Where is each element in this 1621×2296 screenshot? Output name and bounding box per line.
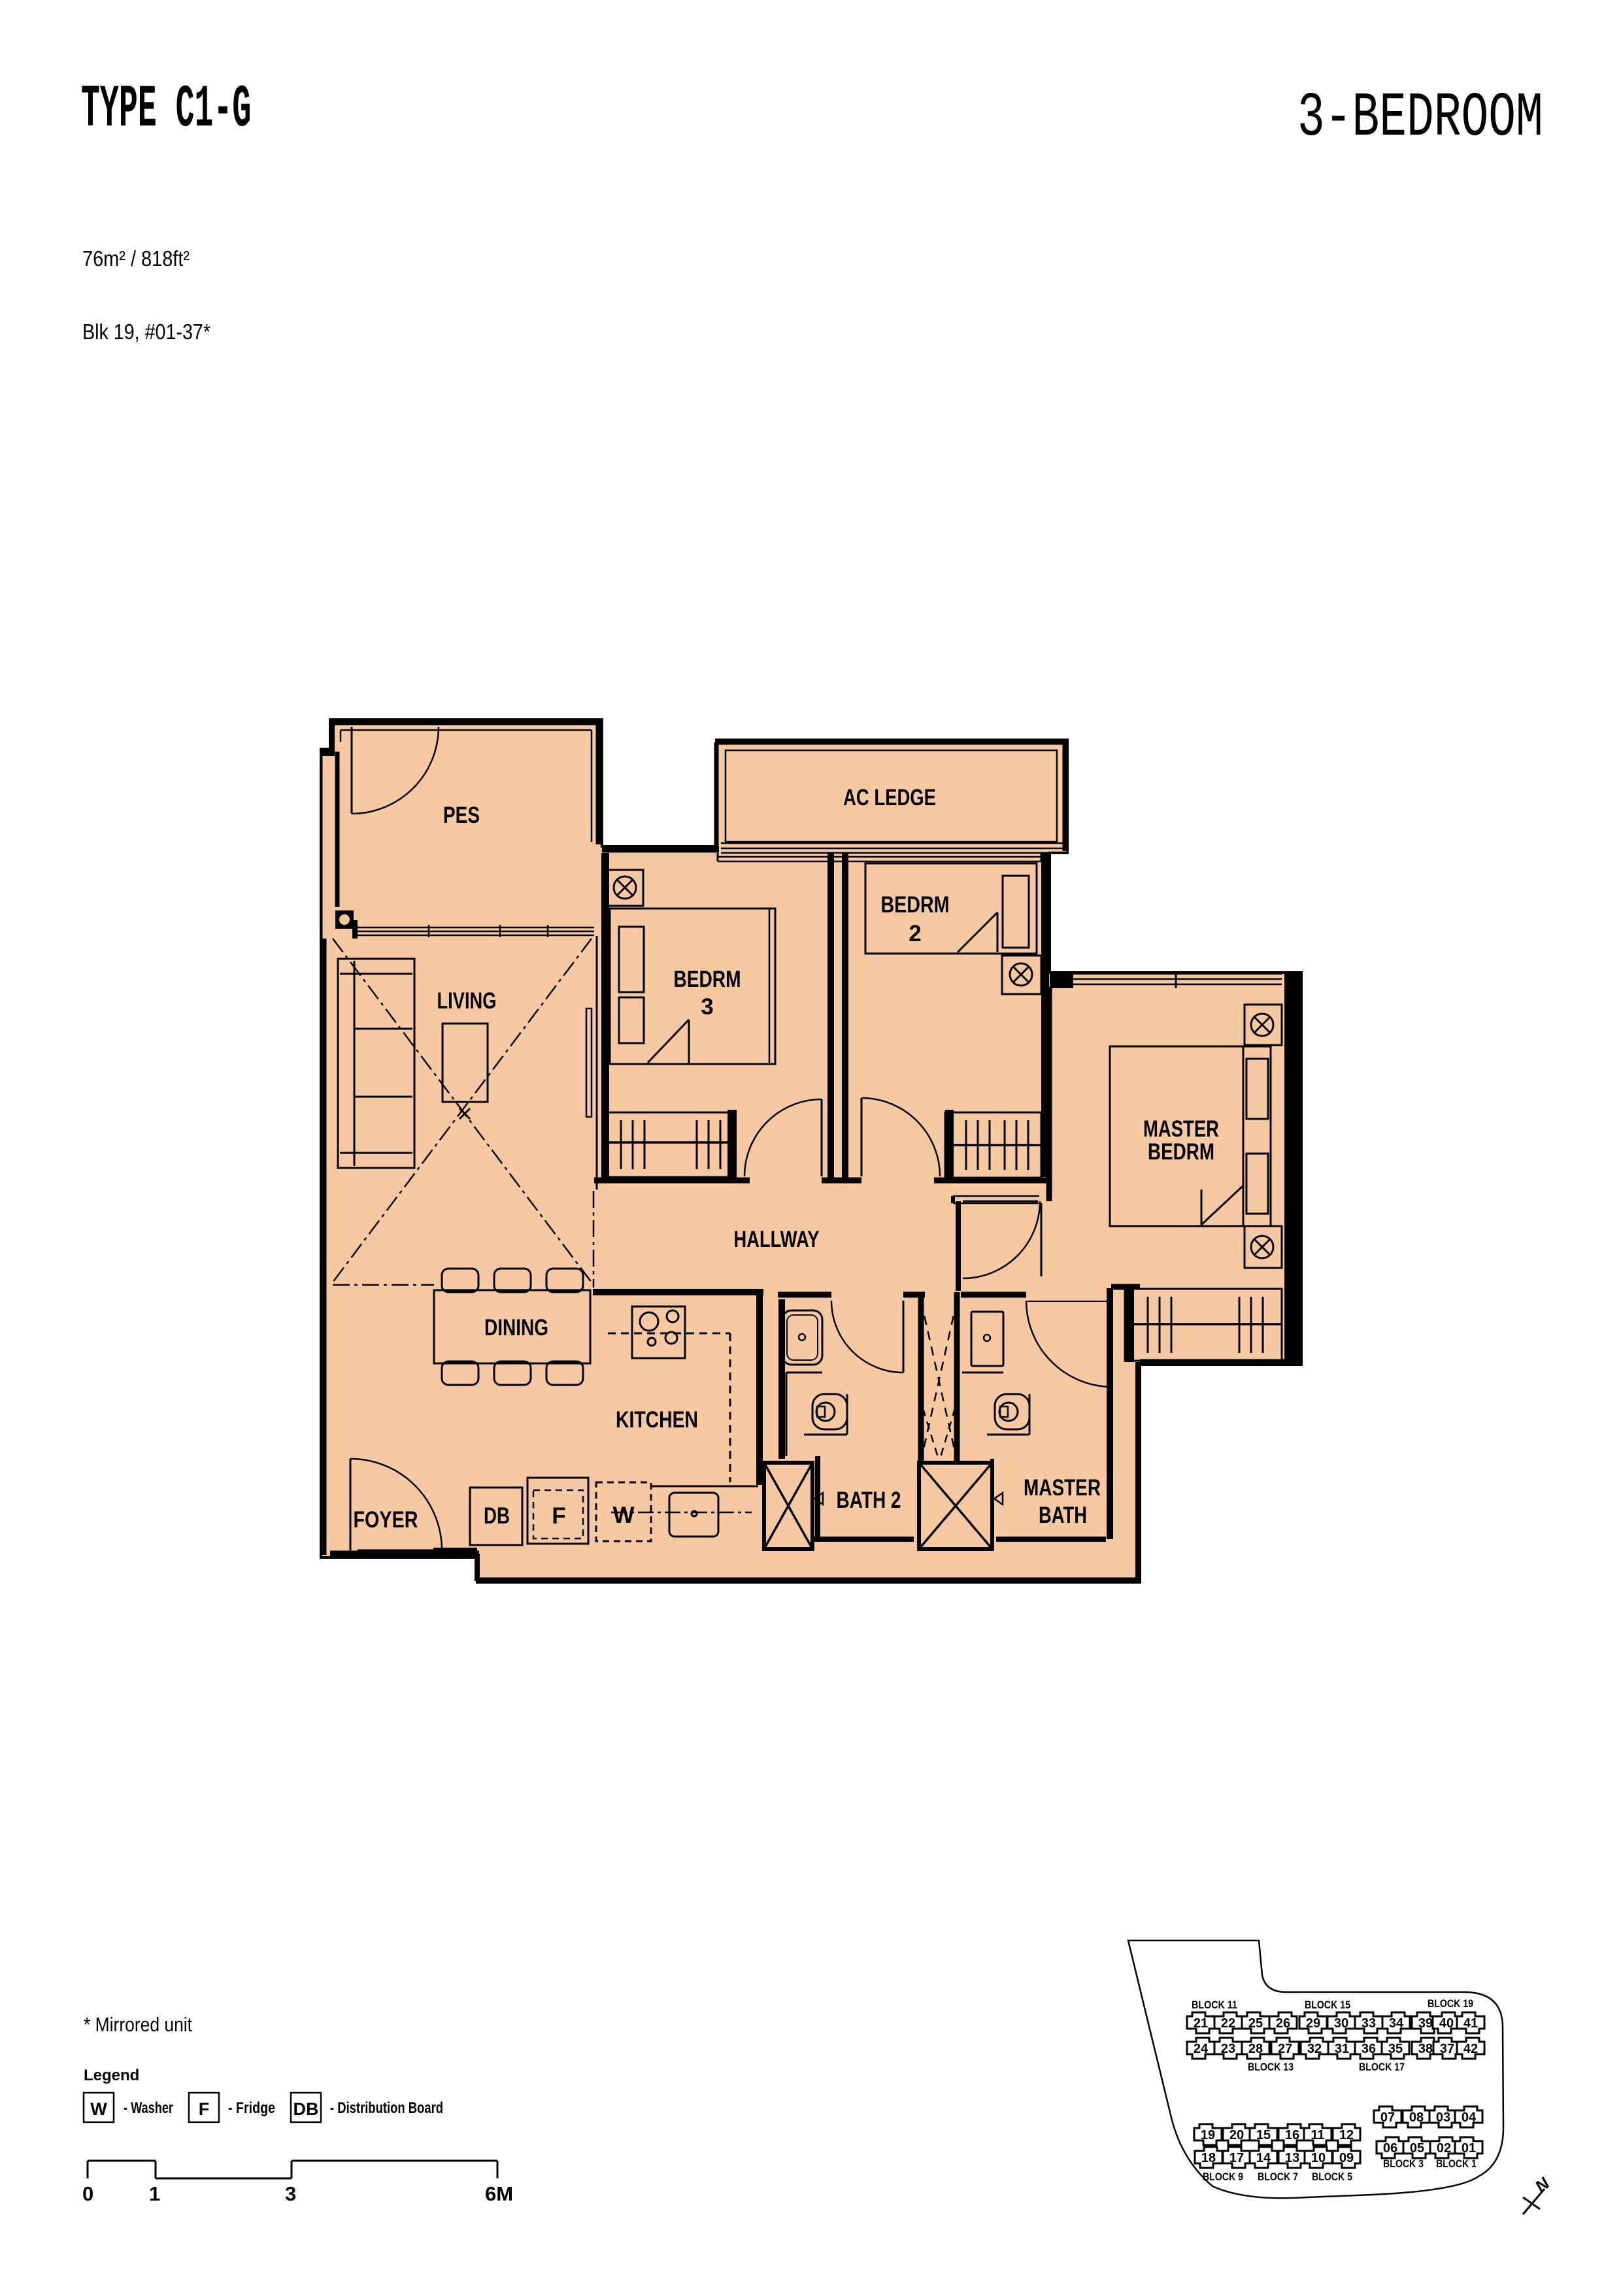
svg-text:AC LEDGE: AC LEDGE [843, 785, 936, 810]
svg-text:28: 28 [1248, 2042, 1263, 2056]
svg-text:27: 27 [1278, 2042, 1292, 2056]
svg-text:BLOCK 11: BLOCK 11 [1192, 1999, 1237, 2011]
svg-text:26: 26 [1276, 2016, 1290, 2031]
svg-text:TYPE C1-G: TYPE C1-G [81, 76, 251, 144]
svg-text:03: 03 [1436, 2110, 1450, 2125]
svg-text:09: 09 [1339, 2151, 1354, 2165]
svg-text:0: 0 [82, 2182, 93, 2205]
svg-text:20: 20 [1229, 2128, 1244, 2142]
svg-text:13: 13 [1285, 2151, 1299, 2165]
svg-text:38: 38 [1418, 2042, 1433, 2056]
svg-text:F: F [199, 2099, 210, 2119]
svg-text:BEDRM: BEDRM [881, 892, 950, 918]
svg-text:10: 10 [1311, 2151, 1326, 2165]
svg-text:LIVING: LIVING [437, 988, 497, 1014]
svg-text:35: 35 [1388, 2042, 1403, 2056]
svg-text:3: 3 [285, 2182, 296, 2205]
svg-text:KITCHEN: KITCHEN [616, 1407, 698, 1433]
svg-text:31: 31 [1335, 2042, 1349, 2056]
svg-text:14: 14 [1256, 2151, 1271, 2165]
svg-text:11: 11 [1311, 2128, 1324, 2142]
svg-text:24: 24 [1194, 2042, 1209, 2056]
svg-text:12: 12 [1339, 2128, 1354, 2142]
svg-text:3-BEDROOM: 3-BEDROOM [1297, 83, 1543, 154]
svg-text:BLOCK 9: BLOCK 9 [1203, 2171, 1243, 2183]
svg-text:BLOCK 15: BLOCK 15 [1305, 1999, 1350, 2011]
svg-text:76m² / 818ft²: 76m² / 818ft² [82, 246, 190, 271]
svg-text:19: 19 [1201, 2128, 1215, 2142]
svg-text:FOYER: FOYER [354, 1507, 418, 1533]
svg-text:BATH 2: BATH 2 [837, 1488, 901, 1513]
svg-text:08: 08 [1409, 2110, 1424, 2125]
svg-text:40: 40 [1439, 2016, 1454, 2031]
svg-text:* Mirrored unit: * Mirrored unit [84, 2013, 192, 2036]
svg-text:36: 36 [1362, 2042, 1376, 2056]
svg-text:BATH: BATH [1039, 1503, 1087, 1528]
svg-text:DB: DB [293, 2099, 319, 2119]
svg-text:2: 2 [909, 921, 921, 946]
svg-text:39: 39 [1418, 2016, 1433, 2031]
svg-text:BLOCK 1: BLOCK 1 [1436, 2157, 1477, 2170]
svg-text:BLOCK 7: BLOCK 7 [1258, 2171, 1298, 2183]
svg-text:BLOCK 19: BLOCK 19 [1428, 1997, 1473, 2010]
svg-text:05: 05 [1410, 2141, 1424, 2155]
svg-text:Blk 19, #01-37*: Blk 19, #01-37* [82, 320, 210, 344]
svg-text:18: 18 [1201, 2151, 1216, 2165]
svg-text:3: 3 [701, 994, 713, 1020]
svg-text:42: 42 [1463, 2042, 1478, 2056]
svg-text:BLOCK 17: BLOCK 17 [1359, 2061, 1405, 2073]
svg-text:W: W [612, 1503, 634, 1528]
svg-text:23: 23 [1221, 2042, 1235, 2056]
svg-text:- Fridge: - Fridge [228, 2099, 275, 2117]
svg-text:02: 02 [1437, 2141, 1451, 2155]
svg-text:W: W [90, 2099, 107, 2119]
svg-text:6M: 6M [485, 2182, 513, 2205]
svg-text:21: 21 [1194, 2016, 1208, 2031]
svg-text:1: 1 [149, 2182, 160, 2205]
svg-text:01: 01 [1462, 2141, 1476, 2155]
svg-text:BLOCK 5: BLOCK 5 [1312, 2171, 1352, 2183]
svg-text:16: 16 [1285, 2128, 1299, 2142]
svg-text:- Distribution Board: - Distribution Board [330, 2099, 443, 2117]
svg-text:F: F [552, 1503, 565, 1529]
svg-text:PES: PES [443, 803, 480, 828]
svg-text:MASTER: MASTER [1024, 1475, 1101, 1501]
svg-text:07: 07 [1380, 2110, 1395, 2125]
svg-text:41: 41 [1463, 2016, 1478, 2031]
svg-text:DB: DB [484, 1503, 510, 1529]
svg-text:29: 29 [1306, 2016, 1320, 2031]
svg-text:06: 06 [1383, 2141, 1397, 2155]
svg-text:25: 25 [1248, 2016, 1263, 2031]
svg-text:BEDRM: BEDRM [674, 967, 741, 992]
svg-text:37: 37 [1440, 2042, 1454, 2056]
svg-text:BLOCK 3: BLOCK 3 [1383, 2157, 1424, 2170]
svg-text:17: 17 [1229, 2151, 1244, 2165]
svg-text:BEDRM: BEDRM [1148, 1139, 1214, 1165]
svg-text:30: 30 [1334, 2016, 1348, 2031]
svg-text:HALLWAY: HALLWAY [734, 1227, 820, 1252]
svg-text:Legend: Legend [84, 2067, 139, 2084]
svg-text:33: 33 [1362, 2016, 1376, 2031]
svg-text:15: 15 [1256, 2128, 1271, 2142]
svg-text:04: 04 [1462, 2110, 1477, 2125]
svg-text:MASTER: MASTER [1143, 1116, 1219, 1142]
svg-text:32: 32 [1307, 2042, 1322, 2056]
svg-text:- Washer: - Washer [124, 2099, 173, 2117]
svg-text:22: 22 [1221, 2016, 1235, 2031]
svg-text:34: 34 [1389, 2016, 1404, 2031]
svg-text:DINING: DINING [484, 1315, 548, 1340]
svg-text:BLOCK 13: BLOCK 13 [1248, 2061, 1294, 2073]
